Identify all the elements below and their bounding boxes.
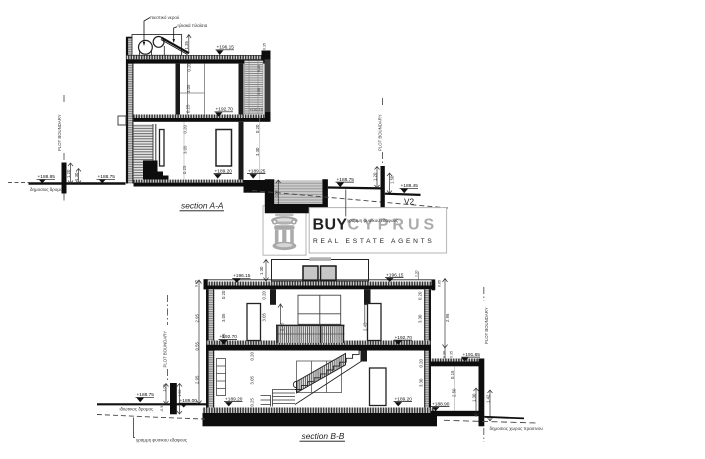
svg-text:1.20: 1.20 <box>372 172 377 181</box>
svg-text:3.30: 3.30 <box>255 147 260 156</box>
svg-text:1.30: 1.30 <box>259 266 264 275</box>
svg-text:-0.98: -0.98 <box>160 404 164 412</box>
svg-text:2.45: 2.45 <box>280 322 285 331</box>
svg-text:0.55: 0.55 <box>195 342 200 351</box>
svg-text:0.85: 0.85 <box>438 280 442 287</box>
svg-text:γραμμη φυσικου εδαφους: γραμμη φυσικου εδαφους <box>347 218 399 223</box>
svg-text:1.50: 1.50 <box>178 390 182 397</box>
svg-text:0.20: 0.20 <box>262 291 267 300</box>
svg-text:0.20: 0.20 <box>418 291 423 300</box>
svg-text:0.20: 0.20 <box>183 125 188 134</box>
svg-text:3.30: 3.30 <box>419 378 424 387</box>
svg-text:1.00: 1.00 <box>163 385 167 392</box>
svg-text:section A-A: section A-A <box>181 201 224 211</box>
svg-text:0.20: 0.20 <box>255 124 260 133</box>
svg-text:3.05: 3.05 <box>250 376 255 385</box>
svg-text:2.95: 2.95 <box>195 314 200 323</box>
svg-text:ηλιακά πλαίσια: ηλιακά πλαίσια <box>178 22 208 28</box>
svg-text:0.25: 0.25 <box>182 165 187 174</box>
svg-text:0.15: 0.15 <box>450 370 455 379</box>
svg-text:0.20: 0.20 <box>221 290 226 299</box>
svg-text:1.30: 1.30 <box>472 393 477 402</box>
svg-text:0.25: 0.25 <box>250 398 255 407</box>
svg-text:3.05: 3.05 <box>262 313 267 322</box>
svg-text:3.30: 3.30 <box>418 314 423 323</box>
svg-text:3.05: 3.05 <box>186 84 191 93</box>
svg-text:0.85: 0.85 <box>195 280 199 287</box>
svg-text:PLOT BOUNDARY: PLOT BOUNDARY <box>484 307 489 344</box>
svg-text:3.05: 3.05 <box>221 313 226 322</box>
svg-text:V2: V2 <box>404 198 414 207</box>
svg-text:2.50: 2.50 <box>451 388 456 397</box>
svg-text:0.20: 0.20 <box>250 352 255 361</box>
svg-text:2.95: 2.95 <box>195 375 200 384</box>
svg-text:0.20: 0.20 <box>257 65 261 72</box>
svg-text:0.30: 0.30 <box>443 351 447 358</box>
svg-text:REAL ESTATE AGENTS: REAL ESTATE AGENTS <box>313 238 435 245</box>
svg-text:+192.15: +192.15 <box>250 108 263 112</box>
svg-text:δημοσιος δρομος: δημοσιος δρομος <box>30 187 65 192</box>
svg-text:ιδιωτικος δρομος: ιδιωτικος δρομος <box>120 407 155 412</box>
svg-text:section B-B: section B-B <box>302 431 345 441</box>
svg-text:PLOT BOUNDARY: PLOT BOUNDARY <box>163 331 168 368</box>
svg-text:δημοσιος χωρος πρασινου: δημοσιος χωρος πρασινου <box>490 426 544 431</box>
svg-text:0.35: 0.35 <box>263 43 267 50</box>
svg-text:2.96: 2.96 <box>445 313 450 322</box>
svg-text:PLOT BOUNDARY: PLOT BOUNDARY <box>57 114 62 151</box>
svg-text:2.45: 2.45 <box>363 322 368 331</box>
svg-text:1.42: 1.42 <box>486 394 491 403</box>
svg-text:1.50: 1.50 <box>389 175 394 184</box>
svg-text:0.30: 0.30 <box>415 270 419 277</box>
svg-text:0.25: 0.25 <box>186 104 191 113</box>
svg-text:0.35: 0.35 <box>450 351 454 358</box>
svg-text:1.35: 1.35 <box>184 41 189 50</box>
svg-text:πιεστικό νερού: πιεστικό νερού <box>150 14 180 20</box>
svg-text:0.20: 0.20 <box>187 63 192 72</box>
svg-text:3.50: 3.50 <box>257 88 261 95</box>
svg-text:1.30: 1.30 <box>74 172 79 181</box>
svg-text:3.05: 3.05 <box>183 145 188 154</box>
svg-text:1.20: 1.20 <box>66 169 71 178</box>
svg-text:0.20: 0.20 <box>419 359 424 368</box>
svg-text:1.50: 1.50 <box>275 190 279 197</box>
svg-text:PLOT BOUNDARY: PLOT BOUNDARY <box>378 114 383 151</box>
svg-text:γραμμη φυσικου εδαφους: γραμμη φυσικου εδαφους <box>136 438 188 443</box>
